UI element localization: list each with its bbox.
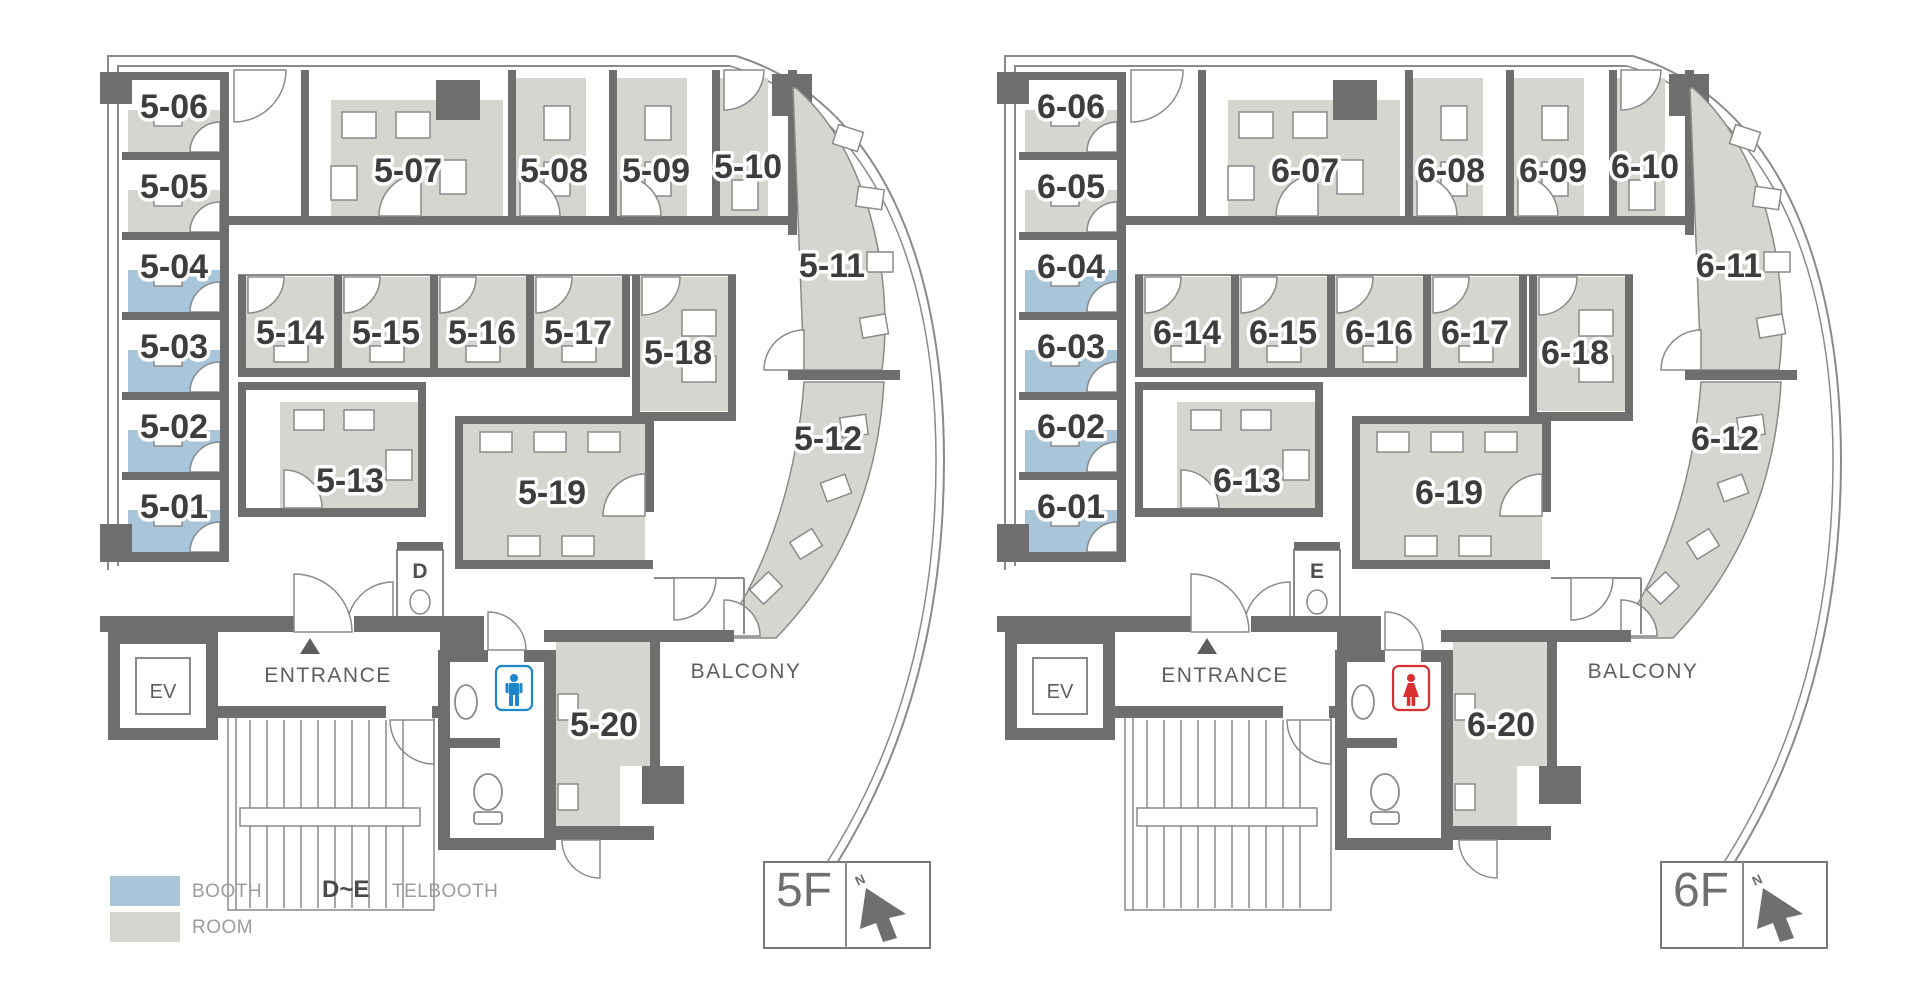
room-6-19: 6-19 — [1360, 424, 1542, 560]
door-arc — [294, 574, 352, 632]
wall — [1405, 70, 1413, 220]
wall — [1135, 368, 1527, 377]
door-arc — [764, 330, 804, 370]
desk — [1293, 112, 1327, 138]
room-6-03: 6-03 — [1025, 320, 1117, 392]
room-label: 6-15 — [1249, 314, 1317, 352]
stair-door-gap — [386, 706, 432, 718]
stair-door-gap — [1283, 706, 1329, 718]
balcony-label: BALCONY — [691, 660, 802, 683]
desk — [645, 106, 671, 140]
desk — [1459, 536, 1491, 556]
wall — [238, 275, 246, 375]
room-label: 6-12 — [1691, 420, 1759, 458]
wall — [1609, 70, 1617, 220]
desk — [440, 160, 466, 194]
wall — [544, 650, 556, 850]
room-label: 5-02 — [140, 408, 208, 446]
room-label: 5-16 — [448, 314, 516, 352]
wall — [220, 72, 229, 562]
wall — [1103, 632, 1115, 740]
wall — [238, 382, 246, 516]
wall — [108, 632, 120, 740]
wall — [1337, 616, 1381, 652]
desk — [294, 410, 324, 430]
room-6-12: 6-12 — [1615, 382, 1781, 638]
room-6-20: 6-20 — [1453, 642, 1547, 826]
room-5-02: 5-02 — [128, 400, 220, 472]
room-6-09: 6-09 — [1514, 78, 1587, 216]
door-arc — [1287, 720, 1331, 764]
wall — [397, 542, 443, 550]
sink — [1352, 685, 1374, 719]
door-arc — [234, 70, 286, 122]
room-label: 6-18 — [1541, 334, 1609, 372]
wall — [122, 152, 226, 160]
room-5-05: 5-05 — [128, 160, 220, 232]
room-6-06: 6-06 — [1025, 80, 1117, 152]
door-arc — [1571, 578, 1613, 620]
legend-telbooth-label: TELBOOTH — [392, 881, 498, 903]
floor-5F: 5-065-055-045-035-025-015-075-085-095-10… — [100, 56, 944, 948]
room-5-09: 5-09 — [617, 78, 690, 216]
desk — [1337, 160, 1363, 194]
floor-marker-label: 5F — [776, 864, 832, 917]
desk — [1377, 432, 1409, 452]
room-label: 5-13 — [316, 462, 384, 500]
wall — [1352, 560, 1550, 569]
wall — [1005, 728, 1115, 740]
desk — [1753, 186, 1782, 209]
wall — [226, 216, 797, 225]
wall — [1539, 766, 1581, 804]
wall — [238, 382, 426, 390]
room-5-04: 5-04 — [128, 240, 220, 312]
door-arc — [1459, 840, 1497, 878]
entrance-label: ENTRANCE — [264, 664, 392, 687]
telbooth-E: E — [1244, 542, 1340, 628]
wall — [1019, 392, 1123, 400]
wall — [1327, 275, 1335, 375]
room-label: 6-09 — [1519, 152, 1587, 190]
desk — [534, 432, 566, 452]
wall — [1423, 275, 1431, 375]
room-6-15: 6-15 — [1239, 277, 1327, 368]
room-label: 5-05 — [140, 168, 208, 206]
room-label: 5-15 — [352, 314, 420, 352]
wall — [650, 642, 660, 770]
wall — [418, 382, 426, 516]
room-label: 5-06 — [140, 88, 208, 126]
wall — [1198, 70, 1206, 220]
room-label: 6-17 — [1441, 314, 1509, 352]
wall — [997, 524, 1029, 562]
room-label: 6-03 — [1037, 328, 1105, 366]
wall — [1506, 70, 1514, 220]
desk — [1241, 410, 1271, 430]
wall — [1441, 630, 1631, 642]
wall — [1333, 80, 1377, 120]
room-6-17: 6-17 — [1431, 277, 1519, 368]
wall — [430, 275, 438, 375]
wall — [1019, 312, 1123, 320]
wall — [1335, 838, 1453, 850]
wall — [122, 72, 226, 80]
wall — [1519, 275, 1527, 375]
desk — [480, 432, 512, 452]
room-label: 6-08 — [1417, 152, 1485, 190]
room-5-16: 5-16 — [438, 277, 526, 368]
wall — [122, 392, 226, 400]
wall — [642, 766, 684, 804]
telbooth-D: D — [347, 542, 443, 628]
room-5-12: 5-12 — [718, 382, 884, 638]
telbooth-letter: E — [1310, 560, 1324, 583]
wall — [1352, 416, 1360, 568]
elevator: EV — [108, 632, 218, 740]
legend-booth-label: BOOTH — [192, 881, 262, 903]
wall — [1005, 632, 1115, 644]
room-label: 5-14 — [256, 314, 324, 352]
booth-color-swatch — [110, 876, 180, 906]
elevator-label: EV — [150, 681, 177, 703]
room-6-10: 6-10 — [1611, 70, 1679, 216]
door-arc — [1385, 612, 1423, 650]
entrance-arrow-icon — [1197, 638, 1217, 654]
room-label: 6-02 — [1037, 408, 1105, 446]
floor-plan-6f: 6-066-056-046-036-026-016-076-086-096-10… — [985, 30, 1865, 990]
wall — [712, 70, 720, 220]
wall — [609, 70, 617, 220]
balcony-label: BALCONY — [1588, 660, 1699, 683]
door-arc — [390, 720, 434, 764]
room-label: 5-08 — [520, 152, 588, 190]
room-6-02: 6-02 — [1025, 400, 1117, 472]
room-label: 6-19 — [1415, 474, 1483, 512]
wall — [1441, 826, 1551, 840]
door-arc — [488, 612, 526, 650]
room-6-01: 6-01 — [1025, 480, 1117, 552]
sink — [455, 685, 477, 719]
room-6-13: 6-13 — [1177, 402, 1315, 508]
wall — [1135, 382, 1323, 390]
wc — [1371, 774, 1399, 810]
wall — [728, 275, 736, 421]
room-6-07: 6-07 — [1228, 80, 1400, 216]
room-label: 6-01 — [1037, 488, 1105, 526]
room-label: 5-04 — [140, 248, 208, 286]
wall — [108, 728, 218, 740]
desk — [859, 314, 888, 338]
desk — [1441, 106, 1467, 140]
room-6-08: 6-08 — [1413, 78, 1485, 216]
room-5-18: 5-18 — [640, 277, 728, 411]
desk — [856, 186, 885, 209]
wall — [438, 650, 450, 850]
wall — [544, 630, 734, 642]
room-6-05: 6-05 — [1025, 160, 1117, 232]
wall — [1335, 738, 1397, 748]
wall — [455, 416, 653, 424]
wall — [122, 472, 226, 480]
desk — [1756, 314, 1785, 338]
wall — [440, 616, 484, 652]
desk — [682, 310, 716, 336]
door-arc — [1191, 574, 1249, 632]
entrance-label: ENTRANCE — [1161, 664, 1289, 687]
wall — [1315, 382, 1323, 516]
desk — [558, 784, 578, 810]
wall — [100, 72, 132, 104]
wall — [1117, 72, 1126, 562]
wall — [334, 275, 342, 375]
wall — [438, 738, 500, 748]
wall — [100, 616, 448, 632]
room-color-swatch — [110, 912, 180, 942]
desk — [331, 166, 357, 200]
door-arc — [674, 578, 716, 620]
stairs — [1125, 718, 1331, 910]
room-5-11: 5-11 — [764, 88, 893, 370]
wall — [1352, 416, 1550, 424]
floor-plan-5f: 5-065-055-045-035-025-015-075-085-095-10… — [88, 30, 968, 990]
legend-telbooth-range: D~E — [322, 876, 369, 904]
room-5-20: 5-20 — [556, 642, 650, 826]
wall — [997, 616, 1345, 632]
entrance-arrow-icon — [300, 638, 320, 654]
room-5-19: 5-19 — [463, 424, 645, 560]
wall — [1019, 72, 1123, 80]
desk — [1405, 536, 1437, 556]
room-label: 6-07 — [1271, 152, 1339, 190]
wall — [100, 524, 132, 562]
stool — [1307, 590, 1327, 614]
room-label: 5-12 — [794, 420, 862, 458]
wall — [108, 632, 218, 644]
room-label: 6-06 — [1037, 88, 1105, 126]
wc — [474, 774, 502, 810]
room-6-04: 6-04 — [1025, 240, 1117, 312]
wall — [122, 552, 228, 562]
wall — [436, 80, 480, 120]
desk — [508, 536, 540, 556]
room-label: 5-01 — [140, 488, 208, 526]
wall — [1005, 632, 1017, 740]
wall — [301, 70, 309, 220]
room-label: 6-04 — [1037, 248, 1105, 286]
desk — [1283, 450, 1309, 480]
desk — [1239, 112, 1273, 138]
room-label: 6-16 — [1345, 314, 1413, 352]
wall — [1547, 642, 1557, 770]
desk — [342, 112, 376, 138]
wall — [1019, 232, 1123, 240]
legend-room-label: ROOM — [192, 917, 253, 939]
wall — [1123, 216, 1694, 225]
wall — [455, 416, 463, 568]
wall — [1529, 275, 1537, 421]
floor-marker-6F: 6FN — [1661, 862, 1827, 948]
room-label: 6-20 — [1467, 706, 1535, 744]
room-label: 5-09 — [622, 152, 690, 190]
room-label: 5-03 — [140, 328, 208, 366]
wall — [508, 70, 516, 220]
door-arc — [1131, 70, 1183, 122]
room-5-17: 5-17 — [534, 277, 622, 368]
wall — [455, 560, 653, 569]
desk — [1542, 106, 1568, 140]
room-6-16: 6-16 — [1335, 277, 1423, 368]
floor-marker-label: 6F — [1673, 864, 1729, 917]
wall — [1294, 542, 1340, 550]
wall — [645, 416, 654, 512]
wall — [122, 312, 226, 320]
room-label: 6-13 — [1213, 462, 1281, 500]
desk — [544, 106, 570, 140]
wall — [997, 72, 1029, 104]
desk — [344, 410, 374, 430]
desk — [588, 432, 620, 452]
wall — [1335, 650, 1347, 850]
desk — [1485, 432, 1517, 452]
wall — [1135, 275, 1143, 375]
room-label: 6-14 — [1153, 314, 1221, 352]
wall — [438, 838, 556, 850]
desk — [1764, 252, 1790, 272]
wall — [1685, 370, 1797, 380]
room-label: 6-05 — [1037, 168, 1105, 206]
room-label: 5-10 — [714, 148, 782, 186]
toilet-door-gap — [488, 650, 524, 662]
room-label: 6-11 — [1696, 247, 1762, 285]
room-6-14: 6-14 — [1143, 277, 1231, 368]
wall — [1542, 416, 1551, 512]
room-5-13: 5-13 — [280, 402, 418, 508]
wall — [632, 275, 640, 421]
room-label: 6-10 — [1611, 148, 1679, 186]
desk — [867, 252, 893, 272]
room-5-01: 5-01 — [128, 480, 220, 552]
desk — [1228, 166, 1254, 200]
elevator: EV — [1005, 632, 1115, 740]
room-label: 5-07 — [374, 152, 442, 190]
legend: BOOTH ROOM D~E TELBOOTH — [110, 876, 630, 948]
wall — [1019, 472, 1123, 480]
room-5-08: 5-08 — [516, 78, 588, 216]
wall — [238, 368, 630, 377]
wall — [1019, 152, 1123, 160]
room-label: 5-11 — [799, 247, 865, 285]
wall — [122, 232, 226, 240]
desk — [1455, 784, 1475, 810]
room-5-10: 5-10 — [714, 70, 782, 216]
room-6-18: 6-18 — [1537, 277, 1625, 411]
room-label: 5-18 — [644, 334, 712, 372]
room-5-07: 5-07 — [331, 80, 503, 216]
telbooth-letter: D — [412, 560, 427, 583]
room-5-15: 5-15 — [342, 277, 430, 368]
desk — [1191, 410, 1221, 430]
elevator-label: EV — [1047, 681, 1074, 703]
floor-6F: 6-066-056-046-036-026-016-076-086-096-10… — [997, 56, 1841, 948]
desk — [386, 450, 412, 480]
room-5-06: 5-06 — [128, 80, 220, 152]
room-6-11: 6-11 — [1661, 88, 1790, 370]
stool — [410, 590, 430, 614]
door-arc — [562, 840, 600, 878]
desk — [1579, 310, 1613, 336]
wall — [206, 632, 218, 740]
wall — [1625, 275, 1633, 421]
door-arc — [1661, 330, 1701, 370]
wall — [544, 826, 654, 840]
floor-marker-5F: 5FN — [764, 862, 930, 948]
room-label: 5-20 — [570, 706, 638, 744]
desk — [396, 112, 430, 138]
wall — [1019, 552, 1125, 562]
wall — [622, 275, 630, 375]
wall — [1135, 382, 1143, 516]
wall — [1441, 650, 1453, 850]
wall — [788, 370, 900, 380]
room-label: 5-17 — [544, 314, 612, 352]
toilet-door-gap — [1385, 650, 1421, 662]
wall — [1135, 508, 1323, 517]
desk — [562, 536, 594, 556]
wall — [526, 275, 534, 375]
desk — [1431, 432, 1463, 452]
room-label: 5-19 — [518, 474, 586, 512]
room-5-03: 5-03 — [128, 320, 220, 392]
wall — [1231, 275, 1239, 375]
room-5-14: 5-14 — [246, 277, 334, 368]
wall — [238, 508, 426, 517]
